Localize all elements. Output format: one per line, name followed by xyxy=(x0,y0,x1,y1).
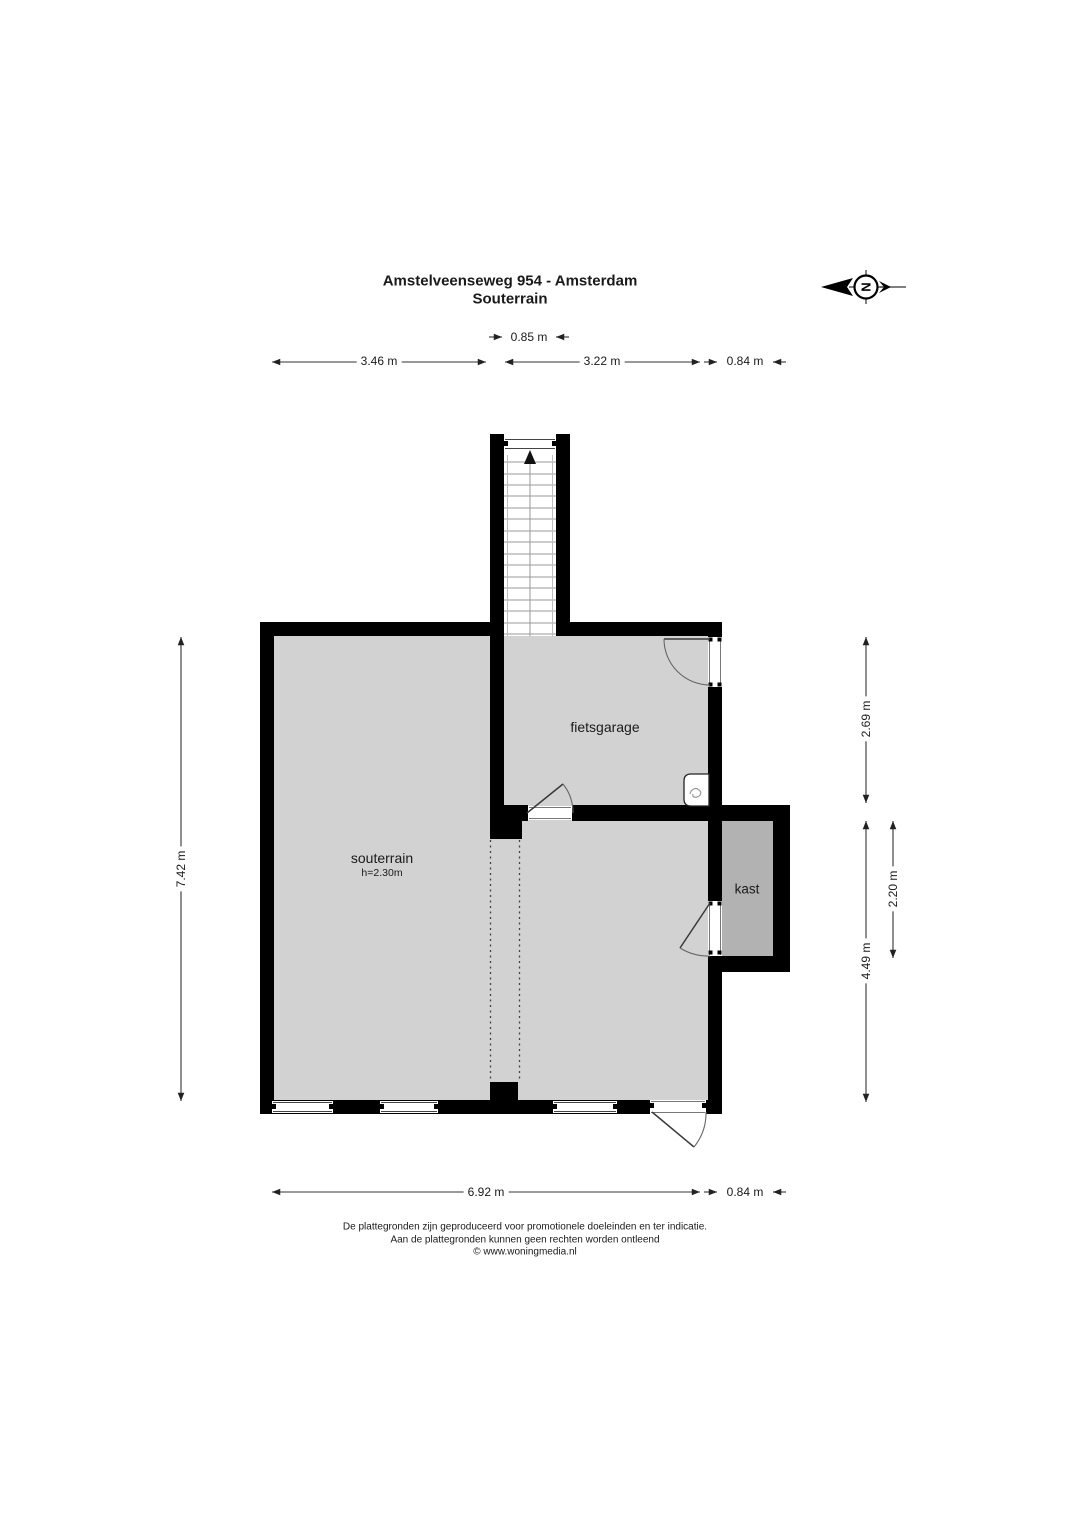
wall-left xyxy=(260,622,274,1114)
wall-central-block xyxy=(490,805,522,839)
wall-top-right xyxy=(570,622,722,636)
page-subtitle: Souterrain xyxy=(472,291,547,308)
dim-left-total: 7.42 m xyxy=(174,847,188,892)
floorplan-page: N Amstelveenseweg 954 - Amsterdam Souter… xyxy=(0,0,1080,1528)
window-bottom-2 xyxy=(380,1101,438,1113)
boiler-icon xyxy=(684,774,709,806)
door-exterior-south xyxy=(650,1100,706,1147)
wall-kast-bottom xyxy=(708,956,790,972)
wall-right-stub xyxy=(708,622,722,637)
wall-fietsgarage-bottom xyxy=(578,805,790,821)
window-bottom-1 xyxy=(272,1101,333,1113)
label-fietsgarage: fietsgarage xyxy=(570,719,639,735)
wall-stair-left xyxy=(490,434,504,636)
window-stair-top xyxy=(504,438,556,450)
footer-disclaimer-2: Aan de plattegronden kunnen geen rechten… xyxy=(390,1235,659,1246)
window-bottom-3 xyxy=(553,1101,617,1113)
compass-north-icon: N xyxy=(821,270,906,304)
dim-right-kast: 2.20 m xyxy=(886,867,900,912)
dim-top-stair: 0.85 m xyxy=(507,330,552,344)
room-floors xyxy=(274,636,773,1100)
dim-right-fietsgarage: 2.69 m xyxy=(859,697,873,742)
floorplan-drawing: N xyxy=(0,0,1080,1528)
dim-bottom-kast: 0.84 m xyxy=(723,1185,768,1199)
wall-right-lower xyxy=(708,972,722,1114)
compass-letter: N xyxy=(859,282,874,291)
staircase xyxy=(504,434,556,636)
label-kast: kast xyxy=(735,882,760,897)
wall-stair-right xyxy=(556,434,570,636)
footer-disclaimer-1: De plattegronden zijn geproduceerd voor … xyxy=(343,1222,707,1233)
label-souterrain-height: h=2.30m xyxy=(361,867,402,879)
dim-bottom-main: 6.92 m xyxy=(464,1185,509,1199)
dim-right-lower: 4.49 m xyxy=(859,939,873,984)
dim-top-right: 3.22 m xyxy=(580,354,625,368)
wall-top-left xyxy=(260,622,492,636)
wall-kast-right xyxy=(773,805,790,972)
dim-top-left: 3.46 m xyxy=(357,354,402,368)
wall-kast-left xyxy=(708,821,722,901)
wall-central-bottom-cap xyxy=(490,1082,518,1114)
dim-top-kast: 0.84 m xyxy=(723,354,768,368)
wall-central xyxy=(490,636,504,806)
footer-copyright: © www.woningmedia.nl xyxy=(473,1247,577,1258)
page-title: Amstelveenseweg 954 - Amsterdam xyxy=(383,273,638,290)
wall-right-fietsgarage xyxy=(708,687,722,805)
label-souterrain: souterrain xyxy=(351,850,413,866)
